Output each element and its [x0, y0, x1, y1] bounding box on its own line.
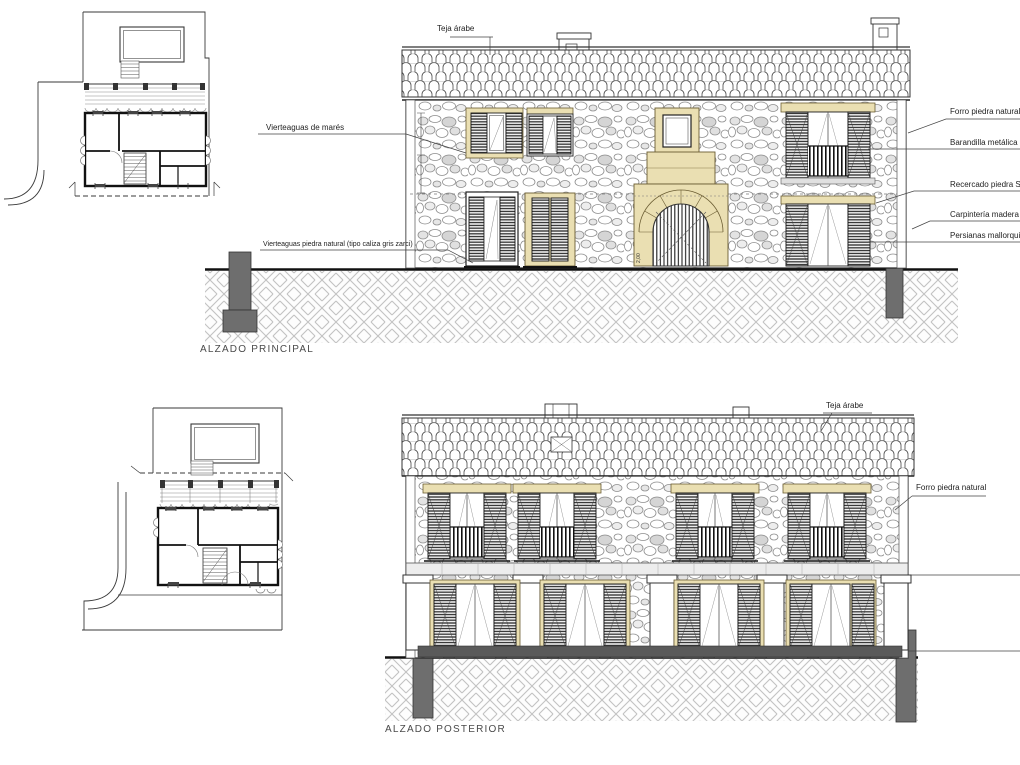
annotation-forro-piedra-posterior: Forro piedra natural	[916, 483, 986, 493]
window	[781, 196, 875, 266]
annotation-vierteaguas-piedra: Vierteaguas piedra natural (tipo caliza …	[263, 240, 413, 250]
roof-principal	[402, 18, 910, 100]
elevation-title-principal: ALZADO PRINCIPAL	[200, 344, 314, 355]
annotation-recercado: Recercado piedra Santa	[950, 180, 1020, 190]
arched-portal: 2,00	[634, 152, 728, 266]
porch-beam	[418, 646, 902, 657]
window	[466, 108, 523, 158]
annotation-vierteaguas-mares: Vierteaguas de marés	[266, 123, 344, 133]
balcony-window	[781, 103, 875, 184]
ground-hatch	[205, 271, 958, 343]
floorplan-building	[81, 110, 211, 189]
window	[464, 192, 520, 267]
drawing-canvas: 2,00	[0, 0, 1020, 765]
window	[527, 108, 573, 156]
chimney	[733, 407, 749, 418]
arch-dimension-label: 2,00	[636, 253, 642, 263]
site-plan-posterior	[82, 408, 293, 630]
window	[655, 108, 699, 154]
elevation-posterior	[385, 404, 1020, 722]
annotation-persianas: Persianas mallorquinas p	[950, 231, 1020, 241]
annotation-carpinteria: Carpintería madera de ir	[950, 210, 1020, 220]
chimney	[545, 404, 577, 418]
architectural-sheet: 2,00	[0, 0, 1020, 765]
pool-steps	[121, 61, 139, 78]
ground-hatch	[385, 659, 918, 721]
window	[523, 193, 577, 267]
annotation-barandilla: Barandilla metálica de ac	[950, 138, 1020, 148]
pergola	[160, 480, 279, 508]
floor-slab-band	[406, 563, 908, 575]
annotation-teja-arabe-principal: Teja árabe	[437, 24, 474, 34]
annotation-forro-piedra-principal: Forro piedra natural	[950, 107, 1020, 117]
site-plan-principal	[4, 12, 220, 205]
roof-posterior	[402, 404, 914, 476]
pergola	[84, 83, 206, 112]
elevation-principal: 2,00	[205, 18, 1020, 343]
elevation-title-posterior: ALZADO POSTERIOR	[385, 724, 506, 735]
floorplan-building	[154, 506, 283, 593]
balcony-railing	[808, 146, 848, 176]
annotation-teja-arabe-posterior: Teja árabe	[826, 401, 863, 411]
